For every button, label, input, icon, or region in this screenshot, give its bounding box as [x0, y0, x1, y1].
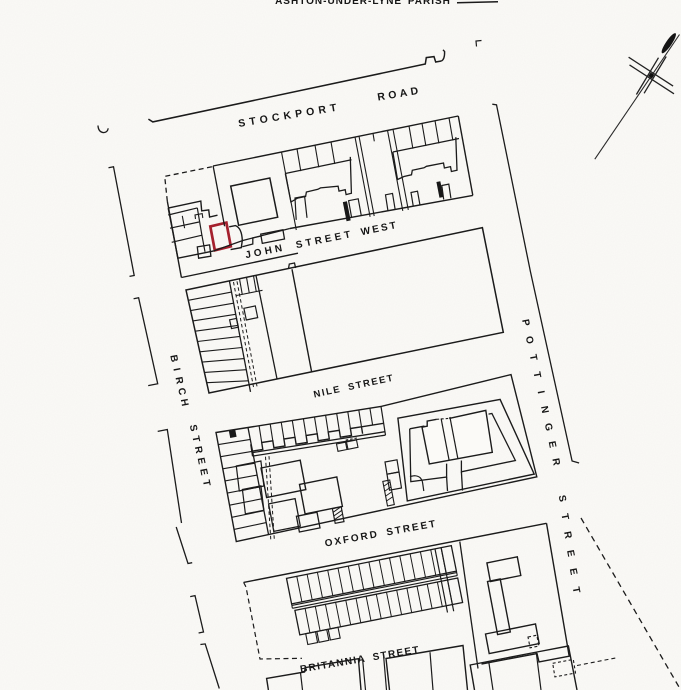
svg-text:ASHTON-UNDER-LYNE PARISH: ASHTON-UNDER-LYNE PARISH [275, 0, 451, 7]
